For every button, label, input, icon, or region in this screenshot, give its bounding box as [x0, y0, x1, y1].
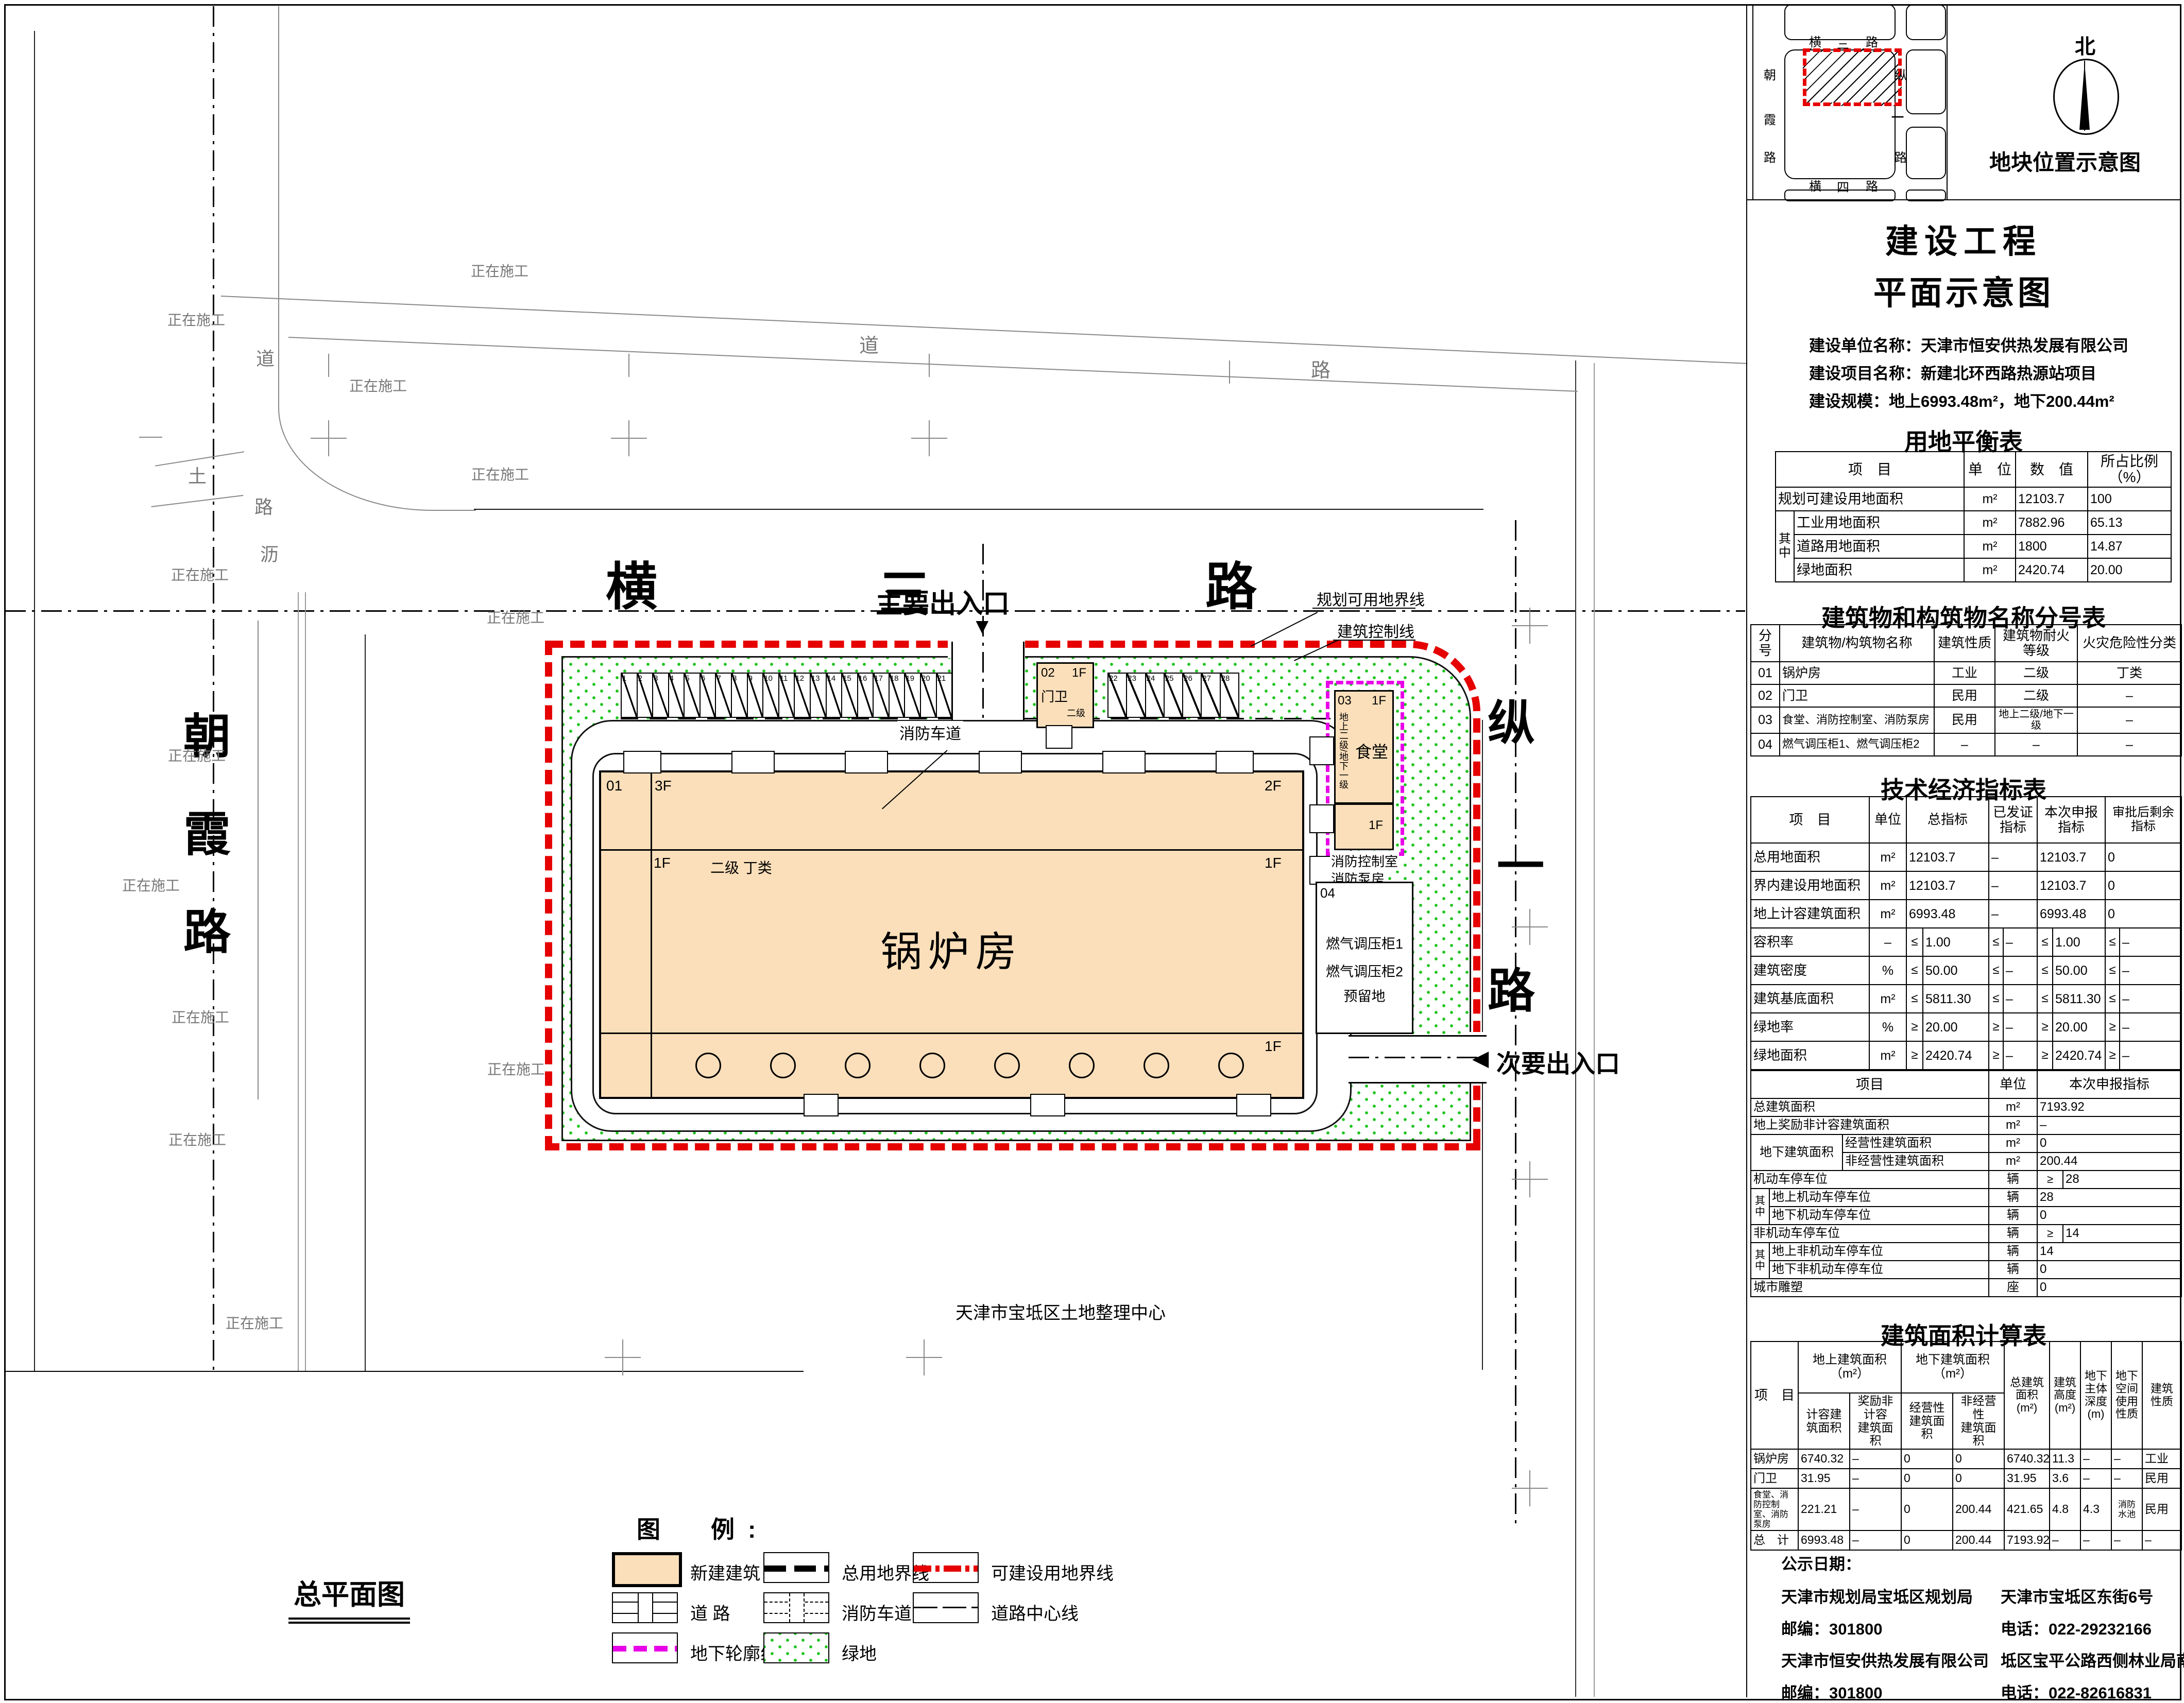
parking-stall-number: 24 [1147, 674, 1155, 683]
table-cell: 地上奖励非计容建筑面积 [1751, 1116, 1989, 1134]
zong1-east-edge-2 [1594, 363, 1595, 1697]
table-cell: 0 [2105, 900, 2181, 928]
table-cell: 7193.92 [2037, 1098, 2181, 1116]
table-cell: ≤ [1989, 928, 2003, 956]
guard-house: 02 1F 门卫 二级 [1036, 662, 1094, 728]
contact-line: 电话：022-29232166 [2001, 1616, 2152, 1639]
table-cell: 地下非机动车停车位 [1769, 1261, 1989, 1279]
table-cell: m² [1989, 1098, 2037, 1116]
tech-indicator-table: 项 目单位总指标已发证指标本次申报指标审批后剩余指标总用地面积m²12103.7… [1750, 796, 2181, 1297]
table-cell: m² [1869, 871, 1906, 900]
flue-circle [695, 1053, 721, 1078]
canteen-name: 食堂 [1355, 739, 1388, 763]
minimap-road-label: 霞 [1764, 110, 1776, 128]
table-cell: 地下建筑面积（m²） [1901, 1341, 2004, 1393]
table-cell: m² [1989, 1116, 2037, 1134]
flue-circle [919, 1053, 945, 1078]
roof-bump [804, 1094, 839, 1116]
secondary-entrance-label: 次要出入口 [1496, 1043, 1620, 1079]
parking-stall: 27 [1201, 674, 1219, 717]
parking-stall-number: 18 [890, 674, 899, 683]
gas-code: 04 [1320, 885, 1335, 901]
minimap-road-label: 横 [1809, 176, 1821, 194]
parking-stall: 9 [747, 674, 763, 717]
table-cell: – [2080, 1469, 2111, 1488]
table-cell: – [2050, 1530, 2080, 1550]
publish-date-label: 公示日期： [1781, 1551, 1861, 1574]
small-dash [139, 437, 162, 438]
table-cell: 0 [2105, 843, 2181, 871]
table-cell: 14 [2063, 1225, 2181, 1243]
table-cell: 200.44 [1953, 1488, 2004, 1530]
plan-bottom-border [4, 1371, 804, 1372]
minimap-road-label: 路 [1866, 32, 1878, 50]
table-cell: 0 [1953, 1469, 2004, 1488]
table-cell: 地上计容建筑面积 [1751, 900, 1869, 928]
table-cell: 辆 [1989, 1207, 2037, 1225]
parking-stall: 6 [699, 674, 715, 717]
group-label-cell: 地下建筑面积 [1751, 1134, 1842, 1171]
parking-stall: 1 [622, 674, 637, 717]
minimap-road-label: 路 [1764, 147, 1776, 165]
table-cell: 20.00 [2053, 1013, 2105, 1041]
table-cell: – [2080, 1449, 2111, 1469]
gas-line3: 预留地 [1317, 985, 1412, 1005]
table-cell: 31.95 [1798, 1469, 1850, 1488]
boiler-house: 01 3F 2F 1F 二级 丁类 1F 1F 锅炉房 [599, 770, 1304, 1099]
canteen-code: 03 [1338, 694, 1352, 708]
survey-cross [1512, 608, 1548, 644]
under-construction-label: 正在施工 [471, 260, 528, 281]
survey-cross [1512, 1470, 1548, 1506]
minimap-block [1906, 4, 1946, 40]
table-cell: 规划可建设用地面积 [1776, 487, 1964, 511]
roof-bump [845, 751, 888, 773]
parking-stall-number: 17 [874, 674, 883, 683]
legend-swatch-underground [612, 1632, 678, 1663]
table-cell: – [2111, 1469, 2142, 1488]
table-cell: – [1989, 871, 2037, 900]
table-cell: 锅炉房 [1780, 662, 1934, 684]
leader-underline-1 [1312, 608, 1415, 609]
fire-rooms-building: 1F [1334, 803, 1394, 850]
minimap-road-label: 四 [1837, 177, 1849, 195]
table-cell: 100 [2088, 487, 2171, 511]
table-cell: 6993.48 [1798, 1530, 1850, 1550]
table-cell: 0 [1901, 1530, 1953, 1550]
table-cell: 0 [1901, 1469, 1953, 1488]
flue-circle [1218, 1053, 1244, 1078]
parking-stall: 26 [1182, 674, 1201, 717]
row-label-cell: 食堂、消防控制室、消防泵房 [1751, 1488, 1798, 1530]
table-cell: – [2120, 928, 2181, 956]
contact-line: 邮编：301800 [1781, 1616, 1882, 1639]
fire-lane-label: 消防车道 [897, 721, 963, 744]
parking-stall-number: 23 [1128, 674, 1136, 683]
table-cell: 7193.92 [2004, 1530, 2050, 1550]
table-cell: 12103.7 [2016, 487, 2088, 511]
parking-stall-number: 4 [670, 674, 674, 683]
table-cell: 50.00 [1923, 956, 1989, 985]
roof-bump [731, 751, 775, 773]
minimap-road-label: 横 [1809, 32, 1821, 50]
parking-stall-number: 27 [1202, 674, 1211, 683]
table-cell: – [2003, 985, 2037, 1013]
table-cell: 非经营性建筑面积 [1842, 1152, 1989, 1171]
parking-stall: 5 [684, 674, 699, 717]
stair-rect [1309, 736, 1334, 765]
legend-swatch-buildable-boundary [913, 1552, 979, 1583]
road-char-tu: 土 [188, 461, 207, 488]
legend-swatch-road [612, 1592, 678, 1623]
minimap-road-label: 三 [1837, 34, 1849, 52]
table-cell: m² [1869, 985, 1906, 1013]
table-cell: ≥ [2105, 1041, 2120, 1070]
table-cell: – [2120, 1013, 2181, 1041]
table-cell: 丁类 [2077, 662, 2181, 684]
table-cell: ≥ [2105, 1013, 2120, 1041]
table-cell: – [2077, 684, 2181, 707]
table-cell: % [1869, 956, 1906, 985]
qizhong-cell: 其中 [1776, 511, 1794, 582]
table-cell: ≤ [2037, 956, 2053, 985]
parking-stall-number: 10 [764, 674, 773, 683]
road-chaoxia-char: 霞 [183, 796, 231, 865]
table-cell: 计容建 筑面积 [1798, 1393, 1850, 1449]
minimap-block [1906, 127, 1946, 179]
table-cell: – [1869, 928, 1906, 956]
minimap-road [1752, 4, 1753, 199]
table-cell: – [2003, 928, 2037, 956]
qizhong-cell: 其中 [1751, 1243, 1769, 1279]
table-cell: 所占比例（%） [2088, 452, 2171, 487]
table-cell: ≤ [2105, 956, 2120, 985]
titleblock-line2: 平面示意图 [1746, 267, 2181, 314]
table-cell: 辆 [1989, 1171, 2037, 1189]
table-cell: 14.87 [2088, 535, 2171, 558]
table-cell: 非经营性 建筑面积 [1953, 1393, 2004, 1449]
chaoxia-east-edge [365, 634, 366, 1371]
secondary-entrance-arrow: ◀ [1472, 1045, 1489, 1071]
parking-stall: 13 [810, 674, 826, 717]
zong1-centerline [1515, 520, 1516, 1524]
table-cell: 座 [1989, 1279, 2037, 1297]
parking-stall-number: 28 [1221, 674, 1230, 683]
table-cell: 民用 [1934, 707, 1995, 733]
roof-bump [979, 751, 1022, 773]
boundary-label-1: 规划可用地界线 [1317, 587, 1425, 610]
parking-stall-number: 13 [811, 674, 820, 683]
table-cell: – [2120, 1041, 2181, 1070]
roof-bump [1236, 1094, 1271, 1116]
survey-cross [911, 420, 947, 456]
table-cell: 6993.48 [1906, 900, 1989, 928]
table-cell: 地下 空间 使用 性质 [2111, 1341, 2142, 1449]
table-cell: 建筑物/构筑物名称 [1780, 625, 1934, 662]
table-cell: – [2003, 956, 2037, 985]
parking-stall: 22 [1108, 674, 1126, 717]
table-cell: 3.6 [2050, 1469, 2080, 1488]
table-cell: 2420.74 [1923, 1041, 1989, 1070]
minimap-right-divider [1947, 4, 1948, 199]
gas-cabinet-area: 04 燃气调压柜1 燃气调压柜2 预留地 [1316, 882, 1413, 1034]
titleblock-info: 建设规模：地上6993.48m²，地下200.44m² [1809, 388, 2114, 411]
parking-stall-number: 12 [795, 674, 804, 683]
under-construction-label: 正在施工 [226, 1312, 283, 1333]
under-construction-label: 正在施工 [168, 1129, 226, 1149]
table-cell: m² [1964, 558, 2016, 582]
under-construction-label: 正在施工 [471, 463, 529, 484]
contact-line: 天津市规划局宝坻区规划局 [1781, 1584, 1973, 1607]
parking-stall: 28 [1220, 674, 1238, 717]
table-cell: ≤ [1989, 985, 2003, 1013]
table-cell: 200.44 [2037, 1152, 2181, 1171]
contact-line: 邮编：301800 [1781, 1680, 1882, 1703]
table-cell: 6740.32 [2004, 1449, 2050, 1469]
minimap-road-label: 一 [1891, 107, 1904, 125]
under-construction-label: 正在施工 [172, 1006, 229, 1027]
parking-stall-number: 22 [1109, 674, 1118, 683]
table-cell: 5811.30 [2053, 985, 2105, 1013]
main-gate-driveway [951, 642, 1025, 720]
under-construction-label: 正在施工 [168, 745, 226, 765]
parking-stall: 12 [794, 674, 810, 717]
secondary-gate-driveway [1349, 1035, 1487, 1083]
table-cell: 总建筑面积 [1751, 1098, 1989, 1116]
guard-name: 门卫 [1041, 686, 1068, 706]
table-cell: 0 [2105, 871, 2181, 900]
survey-cross [605, 1339, 641, 1375]
table-cell: 0 [2037, 1134, 2181, 1152]
table-cell: 28 [2037, 1189, 2181, 1207]
table-cell: 0 [2037, 1279, 2181, 1297]
table-cell: 50.00 [2053, 956, 2105, 985]
survey-tick [328, 354, 329, 377]
parking-stall: 19 [904, 674, 920, 717]
survey-cross [611, 420, 647, 456]
guard-annex [1046, 725, 1072, 749]
table-cell: 火灾危险性分类 [2077, 625, 2181, 662]
table-cell: 地上二级/地下一级 [1995, 707, 2077, 733]
table-cell: – [2111, 1530, 2142, 1550]
under-construction-label: 正在施工 [171, 564, 229, 584]
table-cell: 道路用地面积 [1794, 535, 1964, 558]
roof-bump [1216, 751, 1254, 773]
table-cell: – [1989, 900, 2037, 928]
table-cell: 6993.48 [2037, 900, 2105, 928]
guard-grade: 二级 [1067, 706, 1085, 719]
road-zong1-char: 路 [1488, 953, 1535, 1021]
survey-cross [906, 1339, 942, 1375]
table-cell: 1.00 [2053, 928, 2105, 956]
road-edge-gray [278, 6, 279, 362]
table-cell: 0 [1901, 1488, 1953, 1530]
table-cell: 项 目 [1776, 452, 1964, 487]
parking-stall-number: 19 [906, 674, 914, 683]
diag-road-lu: 路 [1311, 354, 1330, 383]
buildings-table: 分号建筑物/构筑物名称建筑性质建筑物耐火等级火灾危险性分类01锅炉房工业二级丁类… [1750, 624, 2181, 756]
legend-swatch-fire-lane [763, 1592, 829, 1623]
table-cell: – [2077, 707, 2181, 733]
parking-stall: 4 [668, 674, 684, 717]
parking-stall-number: 9 [748, 674, 753, 683]
table-cell: 221.21 [1798, 1488, 1850, 1530]
parking-stall-number: 25 [1165, 674, 1174, 683]
parking-stall-number: 14 [827, 674, 836, 683]
under-construction-label: 正在施工 [122, 874, 180, 895]
parking-stall: 18 [889, 674, 905, 717]
road-heng3-char: 三 [879, 552, 930, 627]
table-cell: 65.13 [2088, 511, 2171, 535]
table-cell: – [1989, 843, 2037, 871]
table-cell: – [2080, 1530, 2111, 1550]
table-cell: ≤ [2105, 985, 2120, 1013]
table-cell: – [2111, 1449, 2142, 1469]
table-cell: 总用地面积 [1751, 843, 1869, 871]
table-cell: – [1850, 1469, 1901, 1488]
table-cell: 04 [1751, 733, 1780, 756]
table-cell: 门卫 [1780, 684, 1934, 707]
table-cell: 二级 [1995, 662, 2077, 684]
road-char-lu: 路 [254, 492, 273, 519]
table-cell: 4.3 [2080, 1488, 2111, 1530]
table-cell: 二级 [1995, 684, 2077, 707]
table-cell: 总建筑 面积 (m²) [2004, 1341, 2050, 1449]
table-cell: 民用 [2142, 1469, 2181, 1488]
table-cell: 5811.30 [1923, 985, 1989, 1013]
survey-tick [1229, 360, 1230, 384]
table-cell: 审批后剩余指标 [2105, 797, 2181, 843]
table-cell: 总指标 [1906, 797, 1989, 843]
minimap-site [1803, 48, 1902, 106]
ditch-line-3 [258, 621, 259, 1099]
table-cell: – [2120, 985, 2181, 1013]
table-cell: 建筑物耐火等级 [1995, 625, 2077, 662]
table-cell: 数 值 [2016, 452, 2088, 487]
table-cell: 绿地面积 [1794, 558, 1964, 582]
parking-stall: 23 [1126, 674, 1145, 717]
table-cell: 20.00 [1923, 1013, 1989, 1041]
parking-row-a: 123456789101112131415161718192021 [621, 673, 952, 718]
parking-stall-number: 15 [843, 674, 851, 683]
survey-cross [1512, 909, 1548, 945]
table-cell: 辆 [1989, 1261, 2037, 1279]
gas-line1: 燃气调压柜1 [1317, 933, 1412, 953]
table-cell: ≥ [2037, 1041, 2053, 1070]
table-cell: 项目 [1751, 1071, 1989, 1098]
parking-row-b: 22232425262728 [1107, 673, 1239, 718]
minimap-title: 地块位置示意图 [1989, 145, 2141, 177]
drawing-sheet: 123456789101112131415161718192021 222324… [0, 0, 2184, 1703]
parking-stall-number: 7 [716, 674, 721, 683]
legend-swatch-road-center [913, 1592, 979, 1623]
table-cell: ≥ [1989, 1041, 2003, 1070]
canteen-building: 03 1F 地上二级/地下一级 食堂 [1334, 690, 1394, 804]
under-construction-label: 正在施工 [349, 375, 407, 395]
table-cell: 2420.74 [2053, 1041, 2105, 1070]
table-cell: 项 目 [1751, 1341, 1798, 1449]
parking-stall: 25 [1164, 674, 1182, 717]
table-cell: 工业 [2142, 1449, 2181, 1469]
contact-line: 电话：022-82616831 [2001, 1680, 2152, 1703]
flue-circle [770, 1053, 796, 1078]
table-cell: 辆 [1989, 1225, 2037, 1243]
table-cell: 03 [1751, 707, 1780, 733]
table-cell: 分号 [1751, 625, 1780, 662]
table-cell: 单 位 [1964, 452, 2016, 487]
stair-rect [1309, 804, 1334, 833]
table-cell: 辆 [1989, 1243, 2037, 1261]
ditch-line-2 [305, 592, 306, 1371]
under-construction-label: 正在施工 [487, 607, 544, 627]
parking-stall: 21 [936, 674, 952, 717]
table-cell: 20.00 [2088, 558, 2171, 582]
table-cell: 地上非机动车停车位 [1769, 1243, 1989, 1261]
parking-stall-number: 3 [654, 674, 658, 683]
parking-stall: 24 [1145, 674, 1164, 717]
table-cell: 12103.7 [1906, 843, 1989, 871]
parking-stall: 17 [873, 674, 889, 717]
table-cell: 民用 [1934, 684, 1995, 707]
parking-stall: 2 [637, 674, 653, 717]
table-cell: 辆 [1989, 1189, 2037, 1207]
table-cell: 单位 [1869, 797, 1906, 843]
survey-cross [311, 420, 347, 456]
table-cell: 非机动车停车位 [1751, 1225, 1989, 1243]
table-cell: 工业用地面积 [1794, 511, 1964, 535]
table-cell: 绿地面积 [1751, 1041, 1869, 1070]
legend-swatch-green [763, 1632, 829, 1663]
table-cell: 建筑密度 [1751, 956, 1869, 985]
parking-stall: 11 [778, 674, 794, 717]
table-cell: 项 目 [1751, 797, 1869, 843]
under-construction-label: 正在施工 [167, 309, 225, 330]
legend-label: 道 路 [690, 1599, 730, 1625]
table-cell: ≤ [1906, 956, 1923, 985]
table-cell: 奖励非计容 建筑面积 [1850, 1393, 1901, 1449]
table-cell: 界内建设用地面积 [1751, 871, 1869, 900]
table-cell: ≤ [1906, 928, 1923, 956]
table-cell: 燃气调压柜1、燃气调压柜2 [1780, 733, 1934, 756]
table-cell: 工业 [1934, 662, 1995, 684]
table-cell: 2420.74 [2016, 558, 2088, 582]
chaoxia-centerline [213, 6, 214, 1371]
minimap-road-label: 纵 [1895, 65, 1907, 83]
table-cell: – [1995, 733, 2077, 756]
road-heng3-char: 横 [606, 545, 657, 620]
table-cell: 地上机动车停车位 [1769, 1189, 1989, 1207]
guard-code: 02 [1041, 666, 1055, 680]
canteen-grade-note: 地上二级/地下一级 [1337, 712, 1350, 799]
road-chaoxia-char: 路 [183, 894, 231, 962]
table-cell: 地上建筑面积（m²） [1798, 1341, 1901, 1393]
legend-label: 新建建筑 [690, 1559, 760, 1585]
table-cell: 0 [1953, 1449, 2004, 1469]
table-cell: 200.44 [1953, 1530, 2004, 1550]
table-cell: 本次申报指标 [2037, 797, 2105, 843]
table-cell: 12103.7 [1906, 871, 1989, 900]
legend-title: 图 例: [637, 1511, 769, 1545]
ditch-line-1 [298, 592, 299, 1371]
table-cell: 地下 主体 深度 (m) [2080, 1341, 2111, 1449]
roof-bump [1102, 751, 1146, 773]
table-cell: 421.65 [2004, 1488, 2050, 1530]
parking-stall-number: 21 [937, 674, 946, 683]
survey-cross [1512, 1161, 1548, 1197]
legend-swatch-new-building [612, 1552, 682, 1587]
heng3-north-edge [474, 509, 1483, 510]
parking-stall-number: 11 [780, 674, 788, 683]
